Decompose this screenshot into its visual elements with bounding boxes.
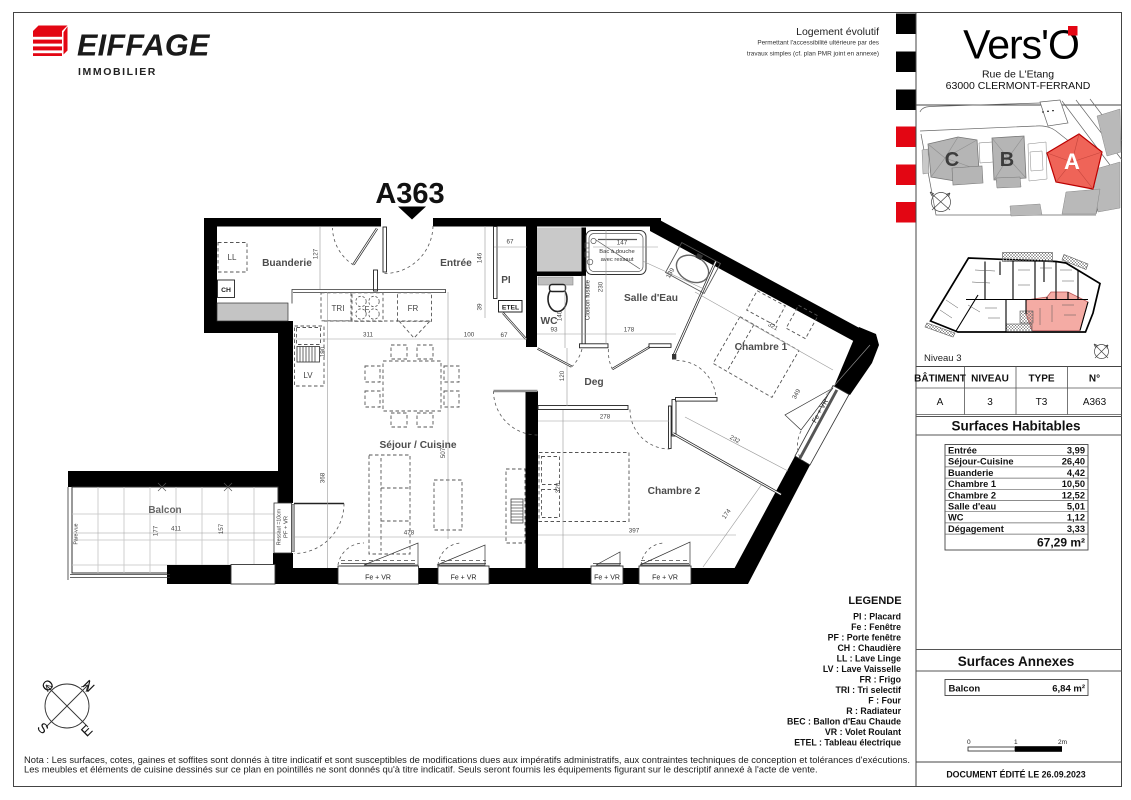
svg-text:Buanderie: Buanderie	[948, 468, 993, 478]
svg-text:Chambre 1: Chambre 1	[735, 342, 788, 353]
svg-text:Fe : Fenêtre: Fe : Fenêtre	[851, 622, 901, 632]
svg-text:146: 146	[477, 252, 484, 263]
svg-text:0: 0	[967, 739, 971, 746]
svg-text:Ressaut =10cm: Ressaut =10cm	[277, 509, 283, 545]
svg-text:349: 349	[791, 388, 802, 401]
svg-text:Pare-vue: Pare-vue	[74, 523, 80, 544]
svg-text:Fe + VR: Fe + VR	[365, 575, 391, 582]
svg-text:140: 140	[557, 310, 564, 321]
svg-text:6,84 m²: 6,84 m²	[1052, 684, 1085, 695]
svg-text:3,33: 3,33	[1067, 524, 1085, 534]
svg-text:LEGENDE: LEGENDE	[848, 595, 901, 607]
svg-text:63000 CLERMONT-FERRAND: 63000 CLERMONT-FERRAND	[946, 80, 1091, 92]
svg-text:Chambre 2: Chambre 2	[648, 486, 701, 497]
svg-text:12,52: 12,52	[1062, 490, 1085, 500]
svg-text:174: 174	[721, 507, 733, 520]
svg-text:320: 320	[555, 482, 562, 493]
svg-text:120: 120	[559, 370, 566, 381]
svg-text:N°: N°	[1089, 374, 1100, 385]
svg-text:A363: A363	[1083, 397, 1107, 408]
svg-text:Rue de L'Etang: Rue de L'Etang	[982, 69, 1054, 81]
svg-text:Bac à douche: Bac à douche	[599, 249, 634, 255]
svg-text:178: 178	[624, 327, 635, 334]
svg-text:3: 3	[987, 397, 993, 408]
svg-text:Balcon: Balcon	[949, 684, 981, 695]
svg-text:321: 321	[766, 321, 779, 332]
svg-text:FR : Frigo: FR : Frigo	[859, 675, 901, 685]
svg-text:NIVEAU: NIVEAU	[971, 374, 1009, 385]
svg-text:Deg: Deg	[584, 377, 603, 388]
svg-text:1,12: 1,12	[1067, 513, 1085, 523]
svg-text:Séjour / Cuisine: Séjour / Cuisine	[380, 440, 457, 451]
svg-text:E: E	[78, 722, 96, 740]
svg-text:PF : Porte fenêtre: PF : Porte fenêtre	[828, 633, 901, 643]
svg-text:10,50: 10,50	[1062, 479, 1085, 489]
svg-text:F : Four: F : Four	[868, 696, 901, 706]
svg-text:100: 100	[464, 332, 475, 339]
svg-text:Surfaces Annexes: Surfaces Annexes	[958, 654, 1075, 669]
svg-text:LL : Lave Linge: LL : Lave Linge	[837, 654, 901, 664]
svg-text:Les meubles et éléments de cui: Les meubles et éléments de cuisine dessi…	[24, 764, 818, 775]
svg-text:LV: LV	[303, 371, 313, 380]
svg-text:190: 190	[320, 346, 327, 357]
svg-text:PF + VR: PF + VR	[284, 516, 290, 538]
svg-text:BÂTIMENT: BÂTIMENT	[914, 372, 966, 385]
svg-text:avec ressaut: avec ressaut	[601, 257, 634, 263]
svg-text:Cloison fusible: Cloison fusible	[585, 279, 592, 320]
svg-text:O: O	[38, 676, 57, 695]
svg-text:26,40: 26,40	[1062, 457, 1085, 467]
svg-text:67,29 m²: 67,29 m²	[1037, 536, 1085, 550]
svg-text:3,99: 3,99	[1067, 446, 1085, 456]
svg-text:ETEL: ETEL	[502, 305, 519, 312]
svg-text:Chambre 2: Chambre 2	[948, 490, 996, 500]
svg-text:177: 177	[153, 525, 160, 536]
svg-text:TRI : Tri selectif: TRI : Tri selectif	[835, 685, 901, 695]
svg-text:Niveau 3: Niveau 3	[924, 353, 962, 364]
svg-text:F: F	[365, 305, 370, 314]
svg-text:IMMOBILIER: IMMOBILIER	[78, 66, 157, 78]
svg-text:Logement évolutif: Logement évolutif	[796, 26, 879, 38]
svg-text:A: A	[937, 397, 944, 408]
svg-text:TRI: TRI	[332, 304, 345, 313]
svg-text:5,01: 5,01	[1067, 502, 1085, 512]
svg-text:39: 39	[477, 303, 484, 311]
svg-text:N: N	[80, 677, 98, 695]
svg-text:127: 127	[313, 248, 320, 259]
svg-text:VR : Volet Roulant: VR : Volet Roulant	[825, 727, 901, 737]
svg-text:Entrée: Entrée	[440, 258, 472, 269]
svg-text:Fe + VR: Fe + VR	[594, 575, 620, 582]
svg-text:Séjour-Cuisine: Séjour-Cuisine	[948, 457, 1014, 467]
svg-text:157: 157	[218, 523, 225, 534]
svg-text:Surfaces Habitables: Surfaces Habitables	[951, 419, 1080, 434]
svg-text:67: 67	[506, 239, 514, 246]
svg-text:311: 311	[363, 332, 374, 339]
svg-text:368: 368	[320, 472, 327, 483]
svg-text:travaux simples (cf. plan PMR: travaux simples (cf. plan PMR joint en a…	[747, 51, 879, 58]
svg-text:147: 147	[617, 240, 628, 247]
svg-text:DOCUMENT ÉDITÉ LE 26.09.2023: DOCUMENT ÉDITÉ LE 26.09.2023	[946, 770, 1085, 780]
svg-text:232: 232	[728, 434, 741, 445]
svg-text:BEC : Ballon d'Eau Chaude: BEC : Ballon d'Eau Chaude	[787, 717, 901, 727]
svg-text:67: 67	[500, 332, 508, 339]
svg-text:T3: T3	[1036, 397, 1048, 408]
svg-text:411: 411	[171, 526, 182, 533]
svg-text:WC: WC	[948, 513, 964, 523]
svg-text:Salle d'Eau: Salle d'Eau	[624, 293, 678, 304]
svg-text:397: 397	[629, 528, 640, 535]
svg-text:WC: WC	[541, 316, 559, 327]
svg-text:1: 1	[1014, 739, 1018, 746]
svg-text:93: 93	[550, 327, 558, 334]
svg-text:C: C	[945, 149, 959, 171]
svg-text:EIFFAGE: EIFFAGE	[77, 29, 211, 63]
svg-text:Fe + VR: Fe + VR	[652, 575, 678, 582]
svg-text:LL: LL	[228, 253, 237, 262]
svg-text:A363: A363	[375, 178, 444, 210]
svg-text:Permettant l'accessibilité ult: Permettant l'accessibilité ultérieure pa…	[757, 40, 879, 47]
svg-text:FR: FR	[408, 304, 419, 313]
svg-text:CH : Chaudière: CH : Chaudière	[837, 643, 901, 653]
svg-text:B: B	[1000, 149, 1014, 171]
svg-text:A: A	[1064, 149, 1080, 174]
svg-text:Buanderie: Buanderie	[262, 258, 312, 269]
svg-text:PI: PI	[501, 275, 511, 286]
svg-text:CH: CH	[221, 287, 231, 294]
svg-text:PI : Placard: PI : Placard	[853, 612, 901, 622]
svg-text:Balcon: Balcon	[148, 505, 181, 516]
svg-text:Vers'O: Vers'O	[963, 22, 1079, 68]
svg-text:2m: 2m	[1058, 739, 1067, 746]
svg-text:Chambre 1: Chambre 1	[948, 479, 996, 489]
svg-text:478: 478	[404, 530, 415, 537]
svg-text:Dégagement: Dégagement	[948, 524, 1004, 534]
svg-text:ETEL : Tableau électrique: ETEL : Tableau électrique	[794, 738, 901, 748]
svg-text:4,42: 4,42	[1067, 468, 1085, 478]
svg-text:278: 278	[600, 414, 611, 421]
svg-text:LV : Lave Vaisselle: LV : Lave Vaisselle	[823, 664, 901, 674]
svg-text:230: 230	[598, 281, 605, 292]
svg-text:Entrée: Entrée	[948, 446, 977, 456]
svg-text:S: S	[34, 719, 52, 737]
svg-text:R : Radiateur: R : Radiateur	[846, 706, 901, 716]
svg-text:TYPE: TYPE	[1028, 374, 1054, 385]
svg-text:Salle d'eau: Salle d'eau	[948, 502, 997, 512]
svg-text:Fe + VR: Fe + VR	[451, 575, 477, 582]
